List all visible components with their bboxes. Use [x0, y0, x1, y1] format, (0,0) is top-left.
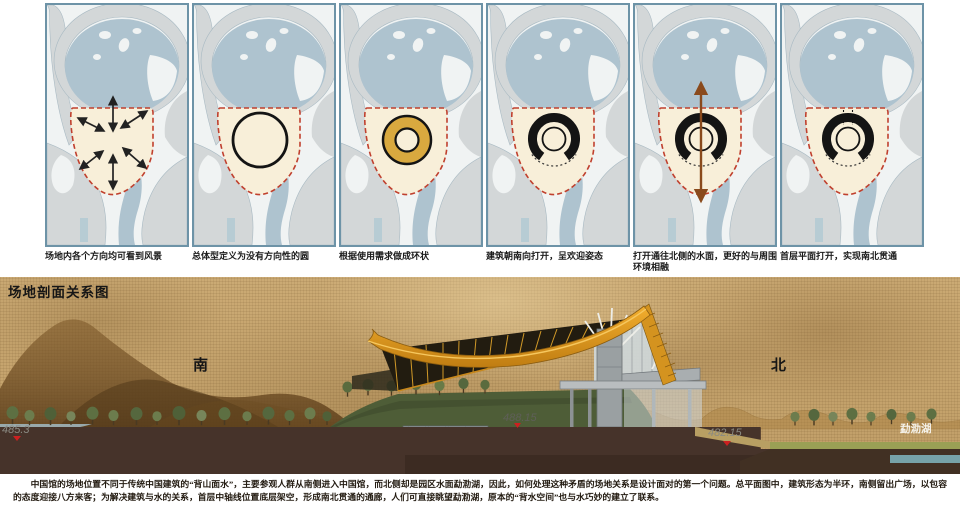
- site-map: [194, 5, 334, 245]
- diagram-panel-axis: [633, 3, 777, 247]
- gold-ring-icon: [383, 116, 431, 164]
- diagram-panel-open-south: [486, 3, 630, 247]
- site-map: [341, 5, 481, 245]
- site-map: [488, 5, 628, 245]
- soil-left: [0, 427, 405, 474]
- diagram-caption: 首层平面打开，实现南北贯通: [780, 251, 932, 262]
- site-map: [635, 5, 775, 245]
- diagram-panel-ring: [339, 3, 483, 247]
- diagram-caption: 根据使用需求做成环状: [339, 251, 491, 262]
- elevation-left: 485.3: [2, 424, 30, 436]
- section-title: 场地剖面关系图: [8, 281, 110, 301]
- soil-under: [405, 455, 760, 474]
- water-strip: [890, 455, 960, 463]
- south-label: 南: [193, 356, 208, 374]
- description-paragraph: 中国馆的场地位置不同于传统中国建筑的“背山面水”，主要参观人群从南侧进入中国馆，…: [13, 478, 947, 504]
- north-label: 北: [771, 357, 786, 374]
- diagram-panel-circle: [192, 3, 336, 247]
- floor-slab: [560, 381, 706, 389]
- diagram-panel-views: [45, 3, 189, 247]
- site-map: [782, 5, 922, 245]
- lake-label: 勐泐湖: [900, 422, 932, 435]
- elevation-right: 482.15: [708, 427, 743, 439]
- poster-page: 场地内各个方向均可看到风景 总体型定义为没有方向性的圆 根据使用需求做成环状 建…: [0, 0, 960, 509]
- diagram-caption: 总体型定义为没有方向性的圆: [192, 251, 344, 262]
- lake-surface: [770, 442, 960, 449]
- section-scene: 南 北 485.3 488.15 482.15 勐泐湖: [0, 277, 960, 474]
- diagram-panel-ground-open: [780, 3, 924, 247]
- diagram-caption: 打开通往北侧的水面，更好的与周围环境相融: [633, 251, 781, 273]
- elevation-plaza: 488.15: [503, 412, 538, 424]
- section-rendering: 南 北 485.3 488.15 482.15 勐泐湖 场地剖面关系图: [0, 277, 960, 474]
- diagram-caption: 建筑朝南向打开，呈欢迎姿态: [486, 251, 638, 262]
- site-map: [47, 5, 187, 245]
- diagram-caption: 场地内各个方向均可看到风景: [45, 251, 197, 262]
